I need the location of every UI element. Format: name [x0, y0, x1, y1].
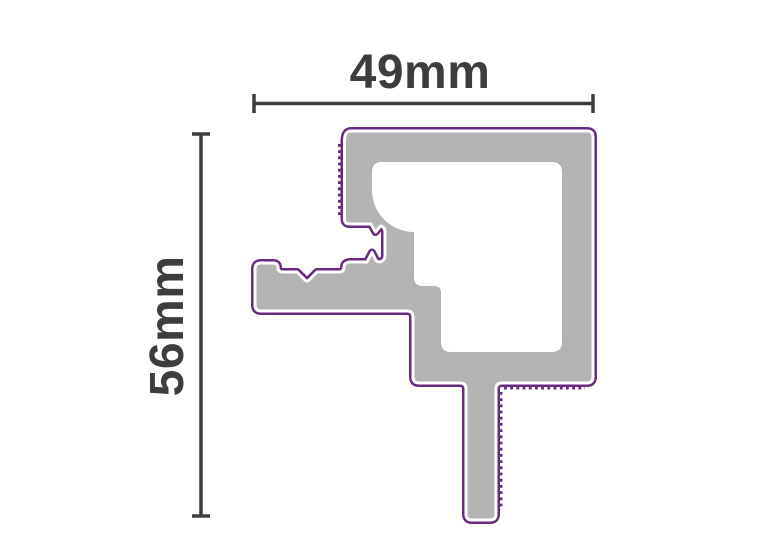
height-dimension: 56mm — [141, 134, 210, 516]
width-dimension-label: 49mm — [350, 46, 491, 99]
width-dimension: 49mm — [254, 46, 593, 113]
profile-cross-section — [255, 131, 593, 520]
profile-diagram-svg: 49mm 56mm — [0, 0, 769, 556]
diagram-canvas: 49mm 56mm — [0, 0, 769, 556]
height-dimension-label: 56mm — [141, 256, 194, 397]
